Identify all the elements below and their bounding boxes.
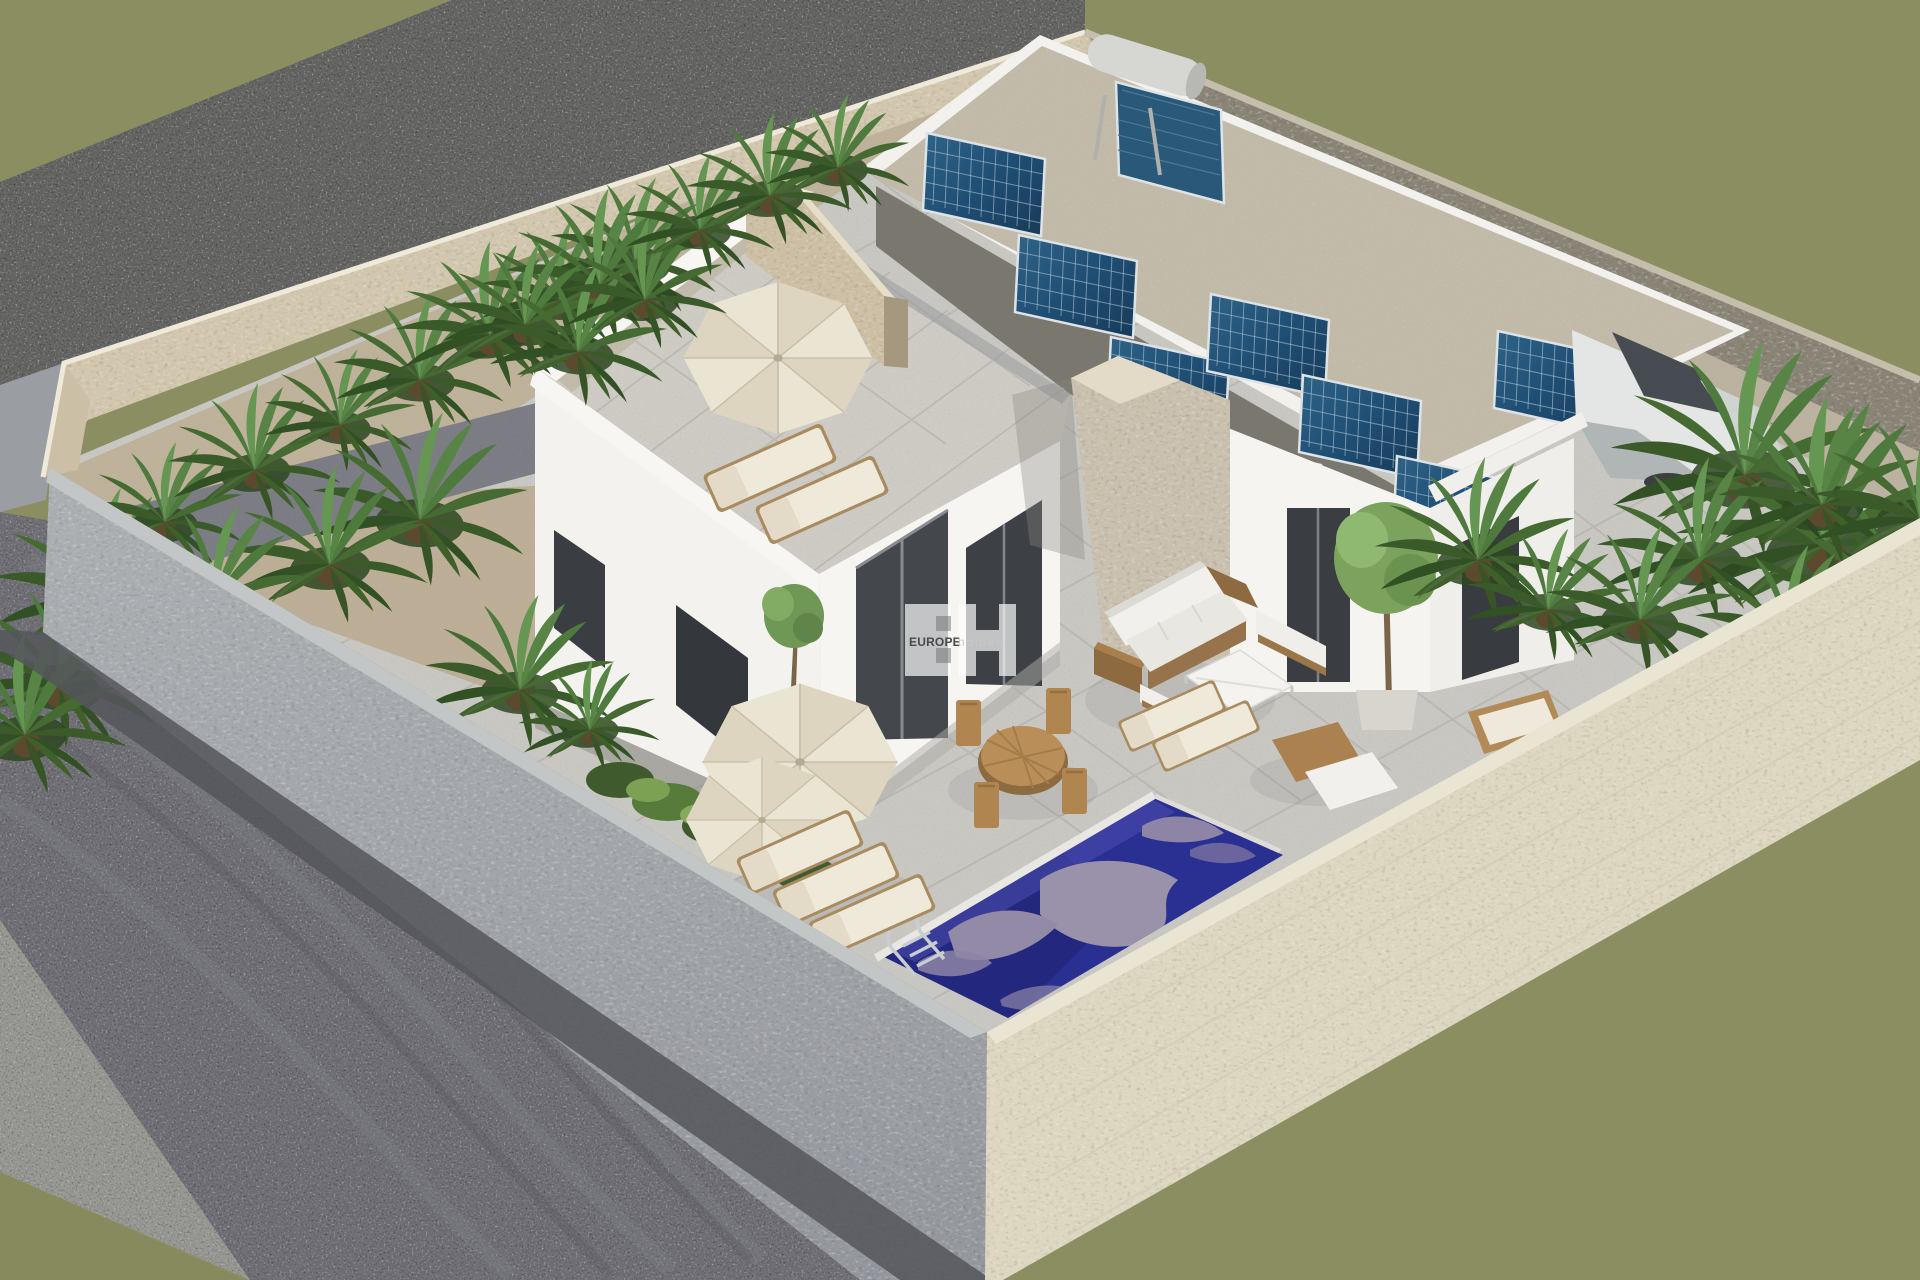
svg-text:homes: homes — [958, 635, 1005, 649]
svg-text:EUROPE: EUROPE — [909, 635, 961, 649]
